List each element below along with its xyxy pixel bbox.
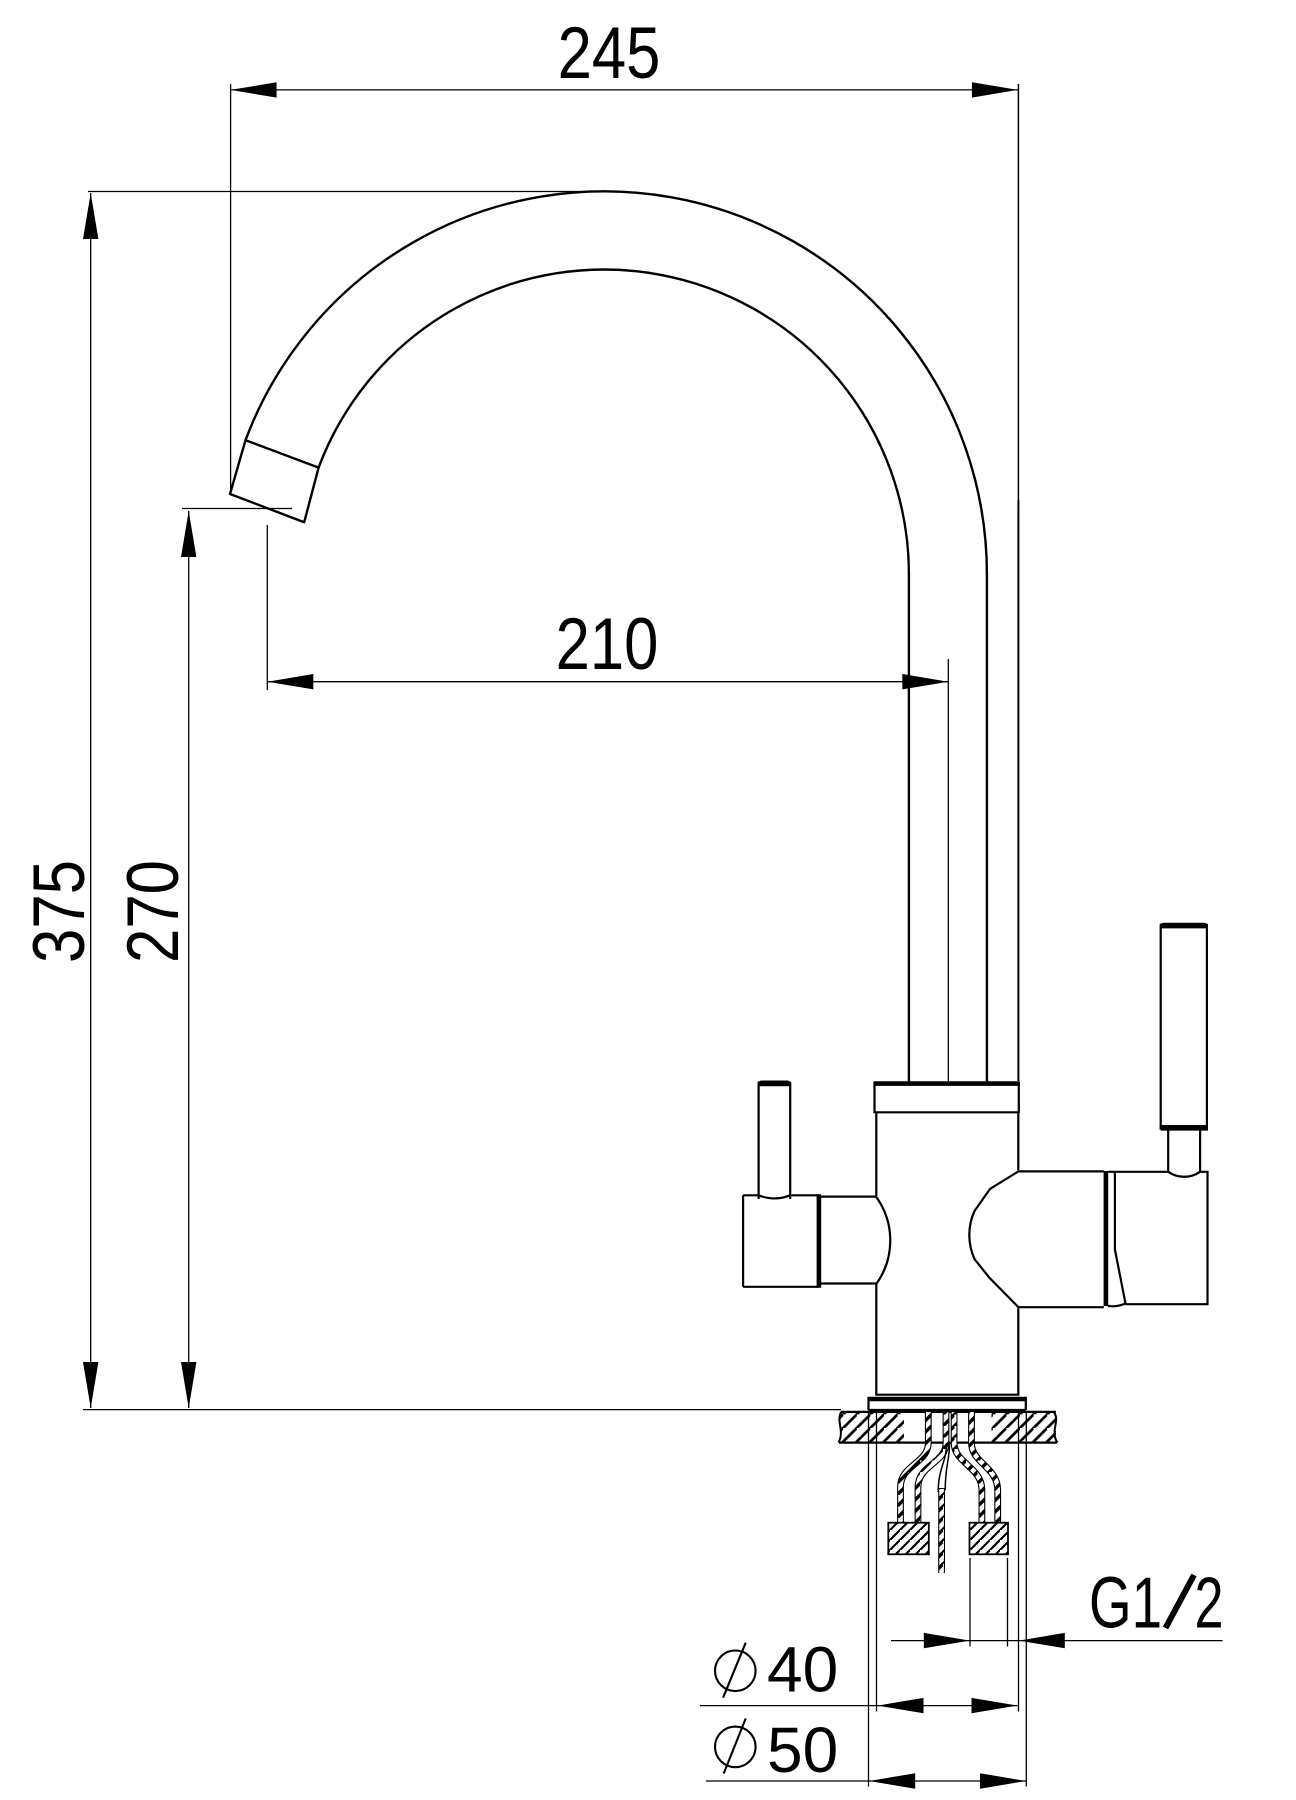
svg-text:245: 245 bbox=[558, 13, 661, 94]
svg-text:270: 270 bbox=[113, 860, 194, 963]
svg-text:G1: G1 bbox=[1089, 1564, 1162, 1644]
svg-text:50: 50 bbox=[767, 1714, 838, 1786]
svg-text:40: 40 bbox=[767, 1634, 838, 1706]
svg-text:2: 2 bbox=[1195, 1564, 1224, 1644]
svg-text:375: 375 bbox=[19, 860, 100, 963]
svg-text:210: 210 bbox=[556, 604, 659, 685]
